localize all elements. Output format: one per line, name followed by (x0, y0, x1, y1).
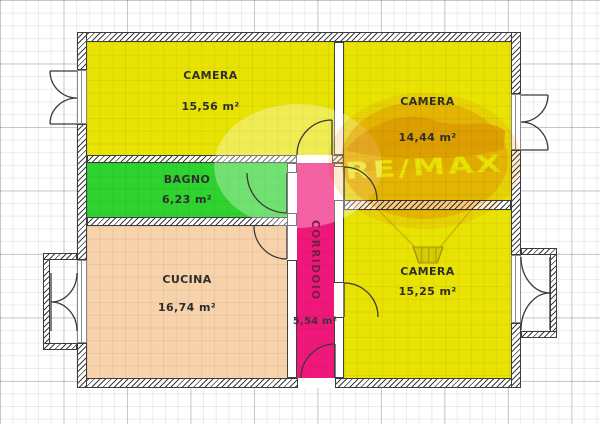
area-camera-top-left: 15,56 m² (87, 100, 334, 113)
window-mid-right (515, 95, 516, 149)
label-camera-top-left: CAMERA (87, 69, 334, 82)
entrance-opening (298, 378, 335, 388)
balcony-left-wall-outer (43, 253, 50, 350)
window-frame-right (511, 94, 521, 150)
wall-exterior-bottom-right (335, 378, 521, 388)
window-frame-balcony-left (77, 260, 87, 343)
door-opening-cucina (287, 226, 297, 260)
window-right-casement (521, 95, 548, 150)
window-mid-balcony-right (515, 256, 516, 322)
wall-exterior-right-2 (511, 150, 521, 255)
area-bagno: 6,23 m² (87, 193, 287, 206)
label-camera-bottom-right: CAMERA (344, 265, 511, 278)
window-mid-left (81, 71, 82, 123)
wall-exterior-left-3 (77, 343, 87, 388)
label-cucina: CUCINA (87, 273, 287, 286)
door-opening-camera-top-right (334, 167, 344, 200)
area-camera-bottom-right: 15,25 m² (344, 285, 511, 298)
window-mid-balcony-left (81, 261, 82, 342)
wall-corridor-right-2 (334, 200, 344, 283)
door-opening-camera-top-left (297, 155, 332, 163)
label-corridoio: CORRIDOIO (309, 220, 321, 301)
floor-plan: RE/MAX CAMERA 15,56 m² CAMERA 14,44 m² B… (0, 0, 600, 424)
door-opening-bagno (287, 173, 297, 213)
label-camera-top-right: CAMERA (344, 95, 511, 108)
window-balcony-right-casement (521, 257, 550, 330)
wall-bagno-bottom (87, 217, 297, 226)
room-camera-top-left (87, 42, 334, 155)
wall-bagno-top-stub (332, 155, 344, 163)
wall-exterior-left-2 (77, 124, 87, 260)
wall-corridor-left-2 (287, 213, 297, 226)
window-left-casement (50, 71, 77, 124)
balcony-left-wall-bottom (43, 343, 77, 350)
wall-camera-divider (334, 42, 344, 155)
window-frame-left (77, 70, 87, 124)
balcony-right-wall-outer (550, 248, 557, 338)
label-bagno: BAGNO (87, 173, 287, 186)
door-opening-camera-bottom-right (334, 283, 344, 317)
wall-exterior-top (77, 32, 521, 42)
balcony-right-wall-bottom (521, 331, 557, 338)
area-camera-top-right: 14,44 m² (344, 131, 511, 144)
wall-exterior-right-3 (511, 323, 521, 388)
wall-corridor-left-1 (287, 163, 297, 173)
area-cucina: 16,74 m² (87, 301, 287, 314)
balcony-right-wall-top (521, 248, 557, 255)
wall-bagno-top (87, 155, 297, 163)
window-balcony-left-casement (51, 273, 77, 331)
wall-exterior-bottom-left (77, 378, 298, 388)
wall-between-right-cameras (344, 200, 511, 210)
room-camera-top-right (344, 42, 511, 200)
room-bagno (87, 163, 287, 217)
wall-exterior-right-1 (511, 32, 521, 94)
area-corridoio: 5,54 m² (285, 316, 345, 327)
wall-exterior-left-1 (77, 32, 87, 70)
window-frame-balcony-right (511, 255, 521, 323)
balcony-left-wall-top (43, 253, 77, 260)
